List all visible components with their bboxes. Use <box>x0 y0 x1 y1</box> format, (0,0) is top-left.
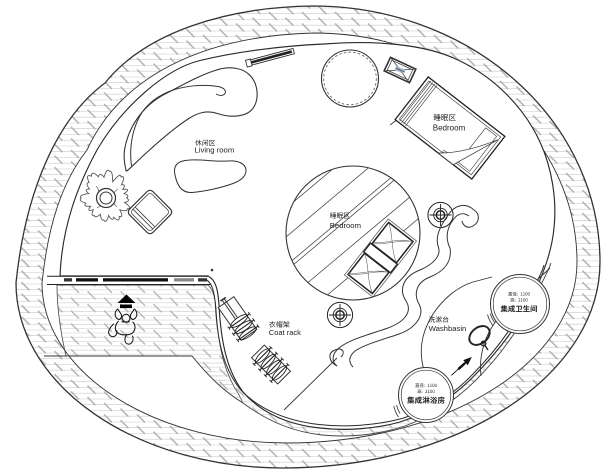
svg-text:Living room: Living room <box>195 146 235 155</box>
svg-text:Washbasin: Washbasin <box>429 324 467 333</box>
svg-text:Coat rack: Coat rack <box>269 328 301 337</box>
svg-text:Bedroom: Bedroom <box>330 221 361 230</box>
svg-text:Bedroom: Bedroom <box>433 123 466 132</box>
